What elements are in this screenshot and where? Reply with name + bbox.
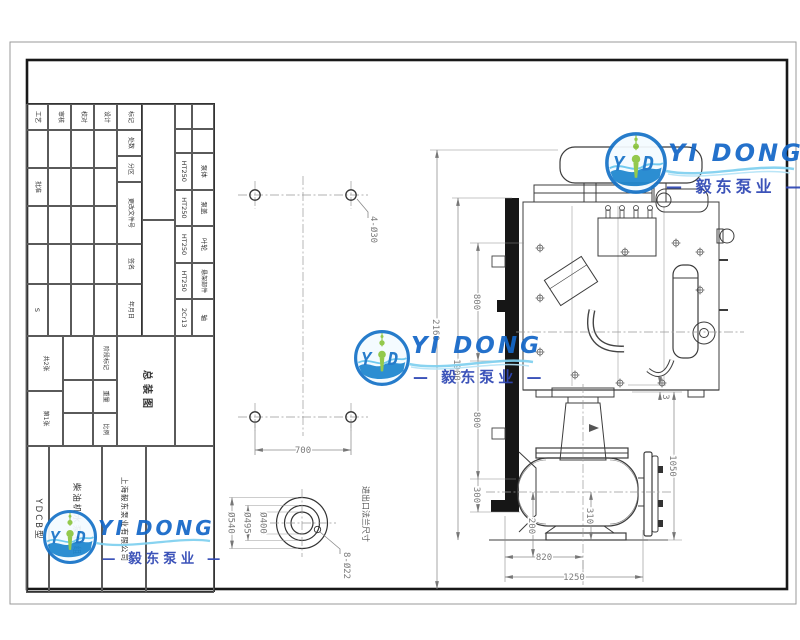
tb-sheets: 共2张: [26, 336, 63, 391]
dim-total: 2160: [430, 319, 440, 341]
dim-seg-bottom: 300: [471, 487, 481, 503]
dim-820: 820: [536, 553, 552, 563]
title-block: 泵体 泵盖 叶轮 悬架部件 轴 HT250 HT250 HT250 HT250 …: [27, 103, 215, 592]
engine-bolts: [536, 239, 705, 388]
bom-material: HT250: [175, 190, 193, 227]
drawing-sheet: Y D 4-Ø30 700: [0, 0, 800, 640]
discharge-flange: [644, 452, 652, 536]
suction-cone: [546, 526, 614, 533]
model-code: YDCB型: [26, 446, 49, 593]
bom-material: 2Cr13: [175, 299, 193, 336]
svg-text:700: 700: [295, 446, 311, 456]
dim-seg-top: 800: [471, 294, 481, 310]
bom-part: 悬架部件: [193, 263, 215, 300]
tb-audit: 审核: [48, 104, 71, 130]
dim-gap: 3: [660, 394, 670, 399]
company-name: 上海毅东泵业有限公司: [102, 446, 146, 593]
tb-check: 校对: [71, 104, 94, 130]
tb-count: 处数: [117, 130, 142, 156]
tb-approve: 批准: [26, 168, 48, 206]
bom-part: 轴: [193, 299, 215, 336]
dim-d495: Ø495: [242, 512, 253, 534]
bom-part: 叶轮: [193, 226, 215, 263]
dim-200: 200: [526, 518, 536, 534]
oil-filter: [673, 265, 698, 358]
bom-part: 泵盖: [193, 190, 215, 227]
dim-310: 310: [584, 508, 594, 524]
tb-sign: 签名: [117, 244, 142, 284]
tb-date: 年月日: [117, 284, 142, 336]
dim-seg-mid: 800: [471, 412, 481, 428]
tb-scale: 比例: [93, 413, 117, 446]
bolt-holes-label: 8-Ø22: [341, 552, 352, 579]
product-name: 柴油机水泵机组: [49, 446, 102, 593]
tb-weight: 重量: [93, 380, 117, 413]
dim-1250: 1250: [563, 573, 585, 583]
bom-material: HT250: [175, 226, 193, 263]
flange-caption: 进出口法兰尺寸: [361, 486, 371, 542]
tb-sheet-no: 第1张: [26, 391, 63, 446]
bom-material: HT250: [175, 153, 193, 190]
bom-material: HT250: [175, 263, 193, 300]
bom-part: 泵体: [193, 153, 215, 190]
suction-flange: [546, 533, 626, 540]
tb-zone: 分区: [117, 156, 142, 182]
dim-1050: 1050: [667, 455, 677, 477]
drawing-title: 总装图: [117, 336, 175, 446]
tb-weight-value: S: [26, 284, 48, 336]
diesel-engine: [516, 147, 744, 397]
dim-d540: Ø540: [226, 512, 237, 534]
tb-process: 工艺: [26, 104, 48, 130]
dim-frame: 1900: [451, 359, 461, 381]
injection-pump: [598, 218, 656, 256]
tb-doc-no: 更改文件号: [117, 182, 142, 244]
holes-label: 4-Ø30: [368, 216, 379, 243]
tb-design: 设计: [94, 104, 117, 130]
main-view: 2160 1900 800 800 300 3 1050 310 200 820…: [430, 147, 744, 589]
tb-mark: 标记: [117, 104, 142, 130]
muffler: [560, 147, 702, 183]
tb-stage-mark: 阶段标记: [93, 336, 117, 380]
flange-detail-view: Ø540 Ø495 Ø400 8-Ø22 进出口法兰尺寸: [226, 486, 372, 579]
radiator-plate: [505, 198, 519, 512]
dim-d400: Ø400: [258, 512, 269, 534]
base-plate-view: 4-Ø30 700: [238, 176, 379, 456]
